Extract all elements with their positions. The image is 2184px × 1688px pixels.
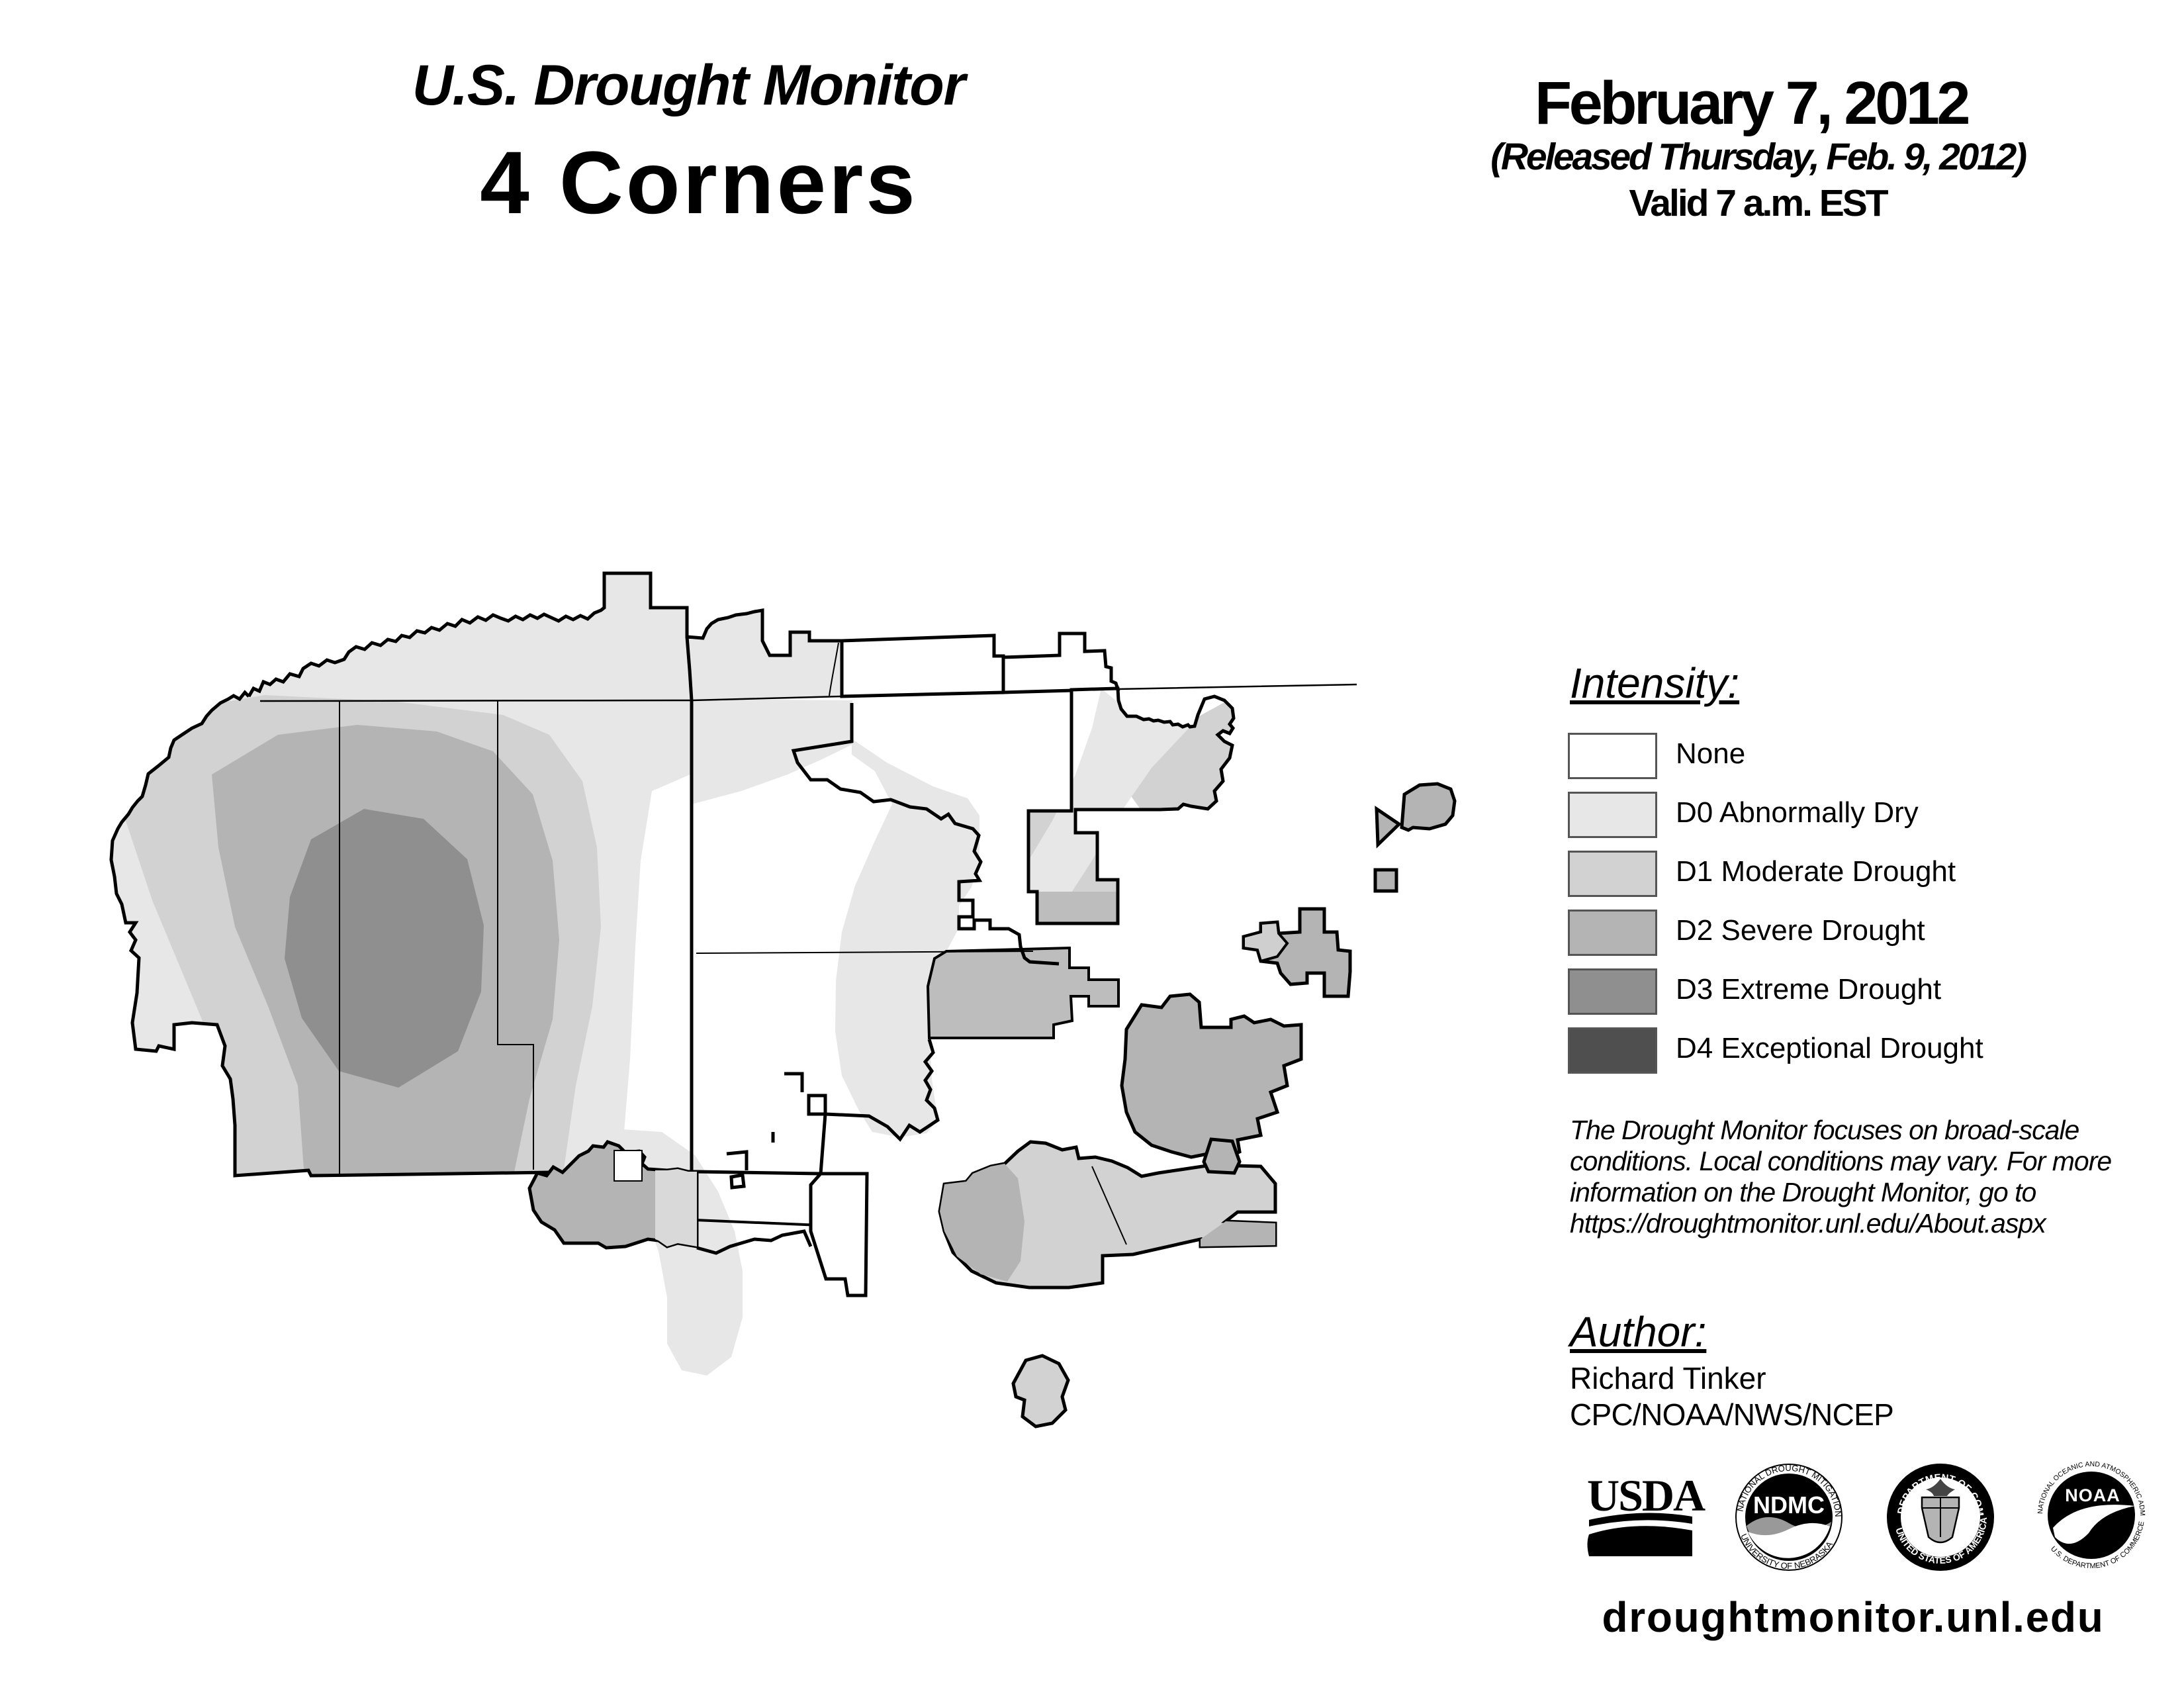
svg-text:NDMC: NDMC — [1753, 1491, 1825, 1519]
svg-text:NOAA: NOAA — [2065, 1485, 2120, 1505]
